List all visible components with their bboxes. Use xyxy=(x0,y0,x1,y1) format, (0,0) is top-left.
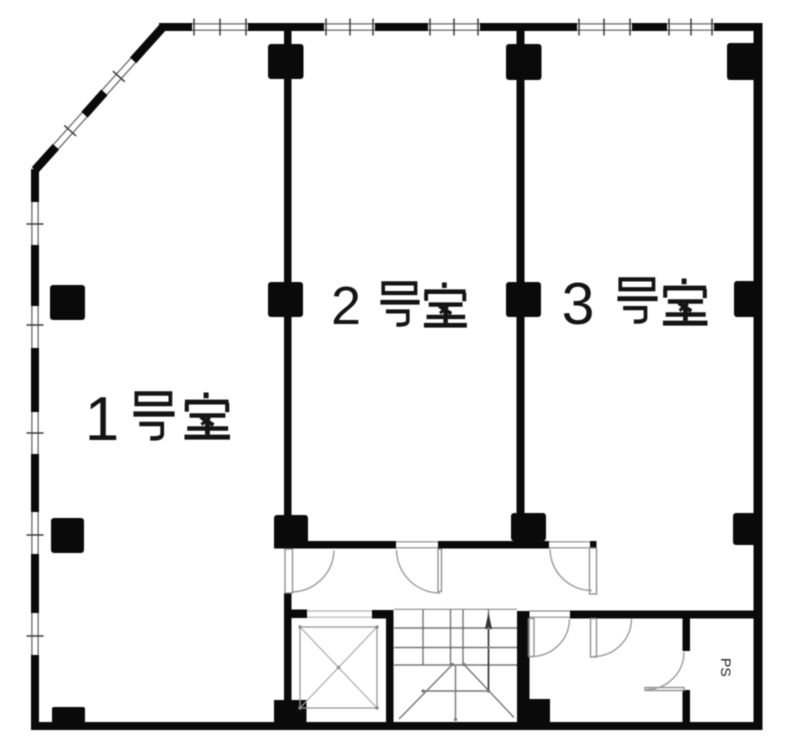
svg-text:PS: PS xyxy=(718,658,734,677)
svg-text:1: 1 xyxy=(85,385,119,454)
svg-text:3: 3 xyxy=(562,271,595,337)
svg-text:2: 2 xyxy=(331,276,361,336)
